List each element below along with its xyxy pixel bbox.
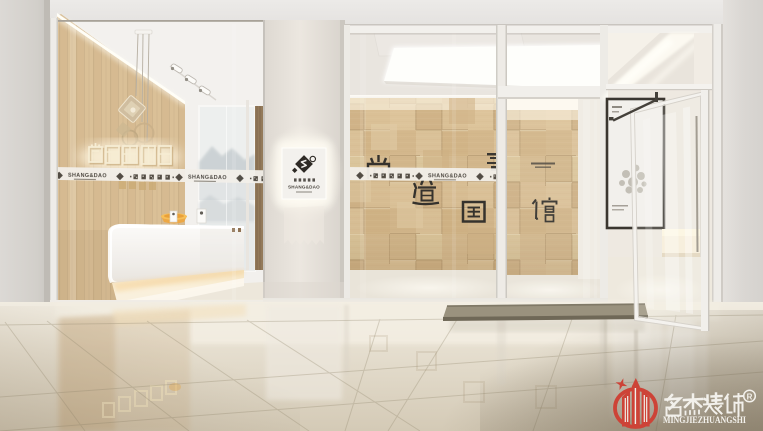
svg-text:SHANG&DAO: SHANG&DAO: [288, 185, 320, 190]
svg-text:R: R: [747, 393, 753, 402]
svg-text:MINGJIEZHUANGSHI: MINGJIEZHUANGSHI: [663, 416, 746, 426]
